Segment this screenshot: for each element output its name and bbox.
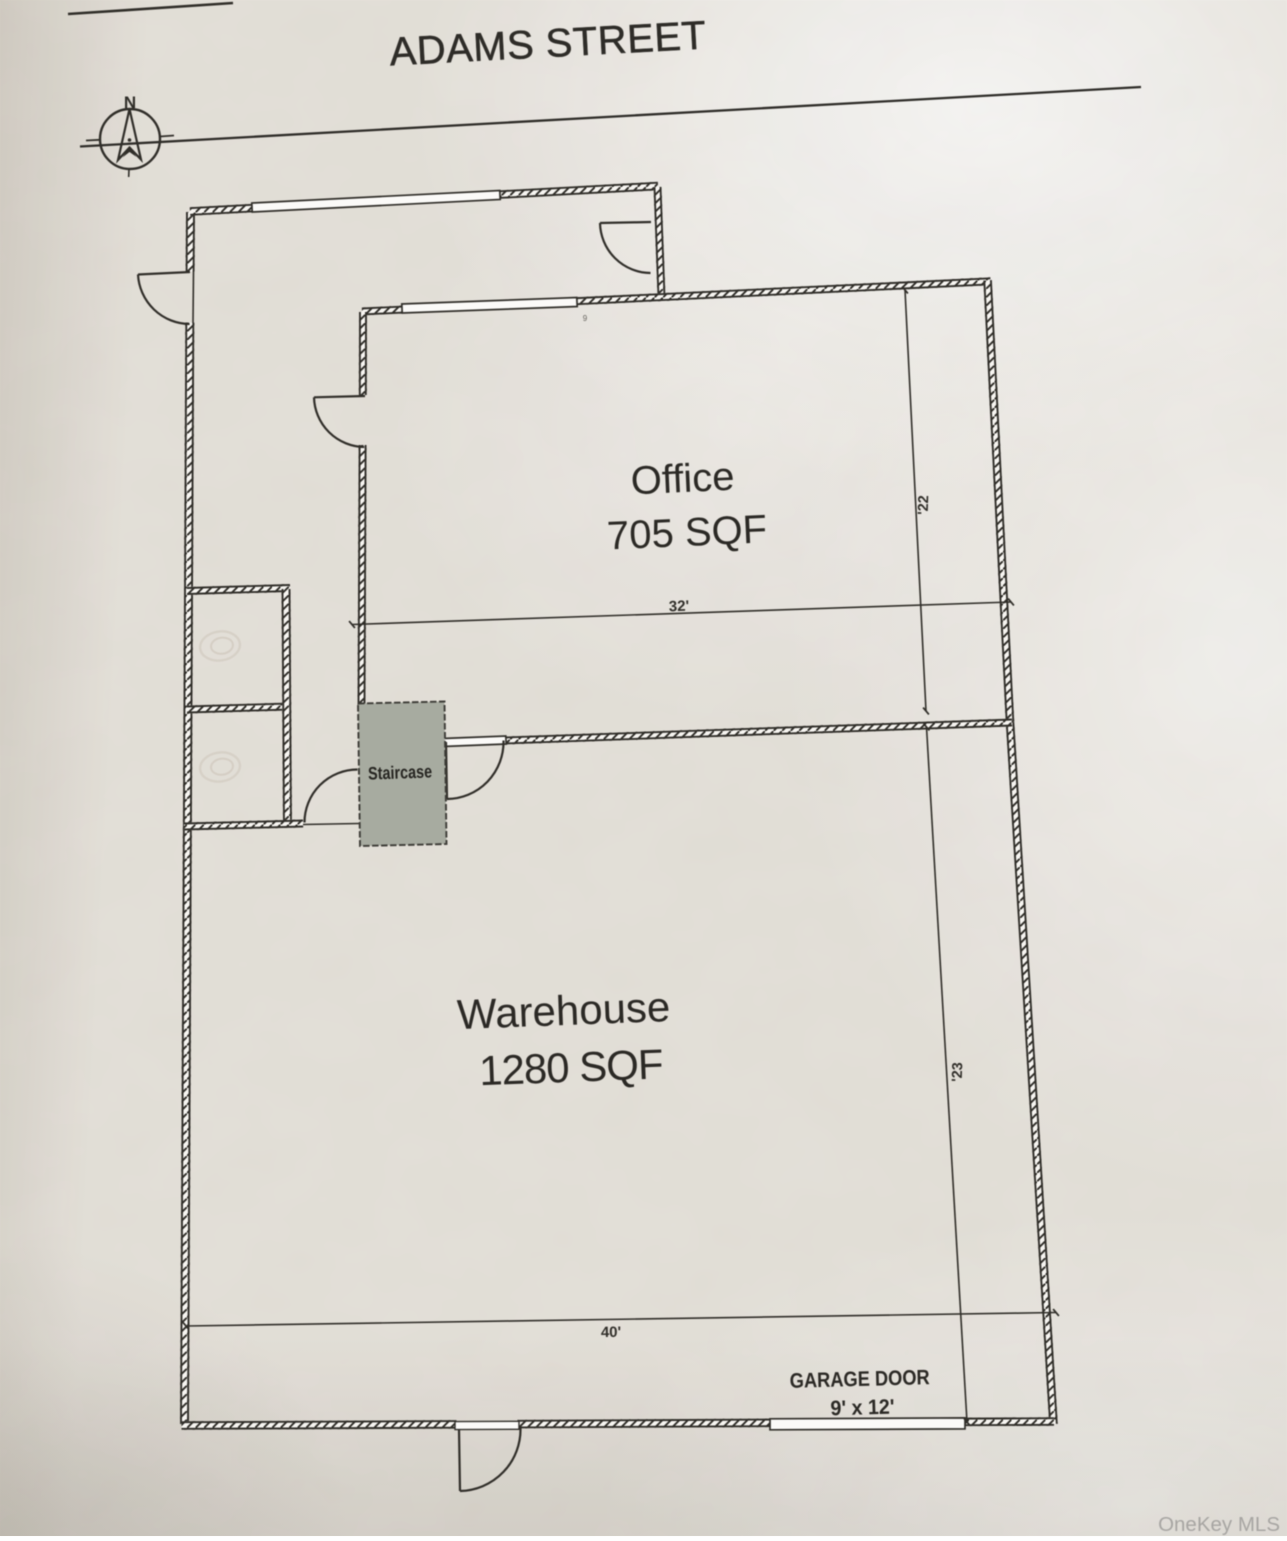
svg-text:9: 9 [583,314,588,323]
svg-text:'23: '23 [950,1062,967,1082]
svg-text:'22: '22 [916,495,933,515]
svg-text:40': 40' [601,1324,622,1341]
svg-text:GARAGE DOOR: GARAGE DOOR [789,1366,930,1393]
svg-text:9' x 12': 9' x 12' [830,1396,895,1421]
svg-text:32': 32' [669,598,690,616]
svg-text:OneKey MLS: OneKey MLS [1158,1513,1280,1536]
svg-text:Office: Office [630,455,736,504]
svg-text:705 SQF: 705 SQF [606,507,768,558]
svg-text:1280 SQF: 1280 SQF [478,1040,663,1094]
svg-text:Staircase: Staircase [368,761,433,783]
svg-text:Warehouse: Warehouse [456,983,671,1038]
